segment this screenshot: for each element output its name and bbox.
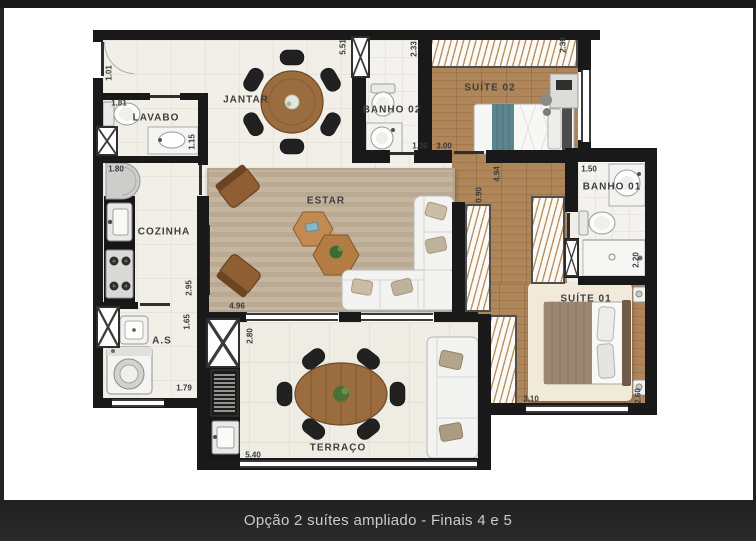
window-estar-terraco-1 bbox=[246, 313, 338, 321]
window-terraco bbox=[240, 460, 477, 468]
room-label-lavabo: LAVABO bbox=[133, 113, 180, 124]
duct-shaft bbox=[564, 239, 579, 277]
door-cozinha bbox=[199, 165, 202, 195]
door-banho01 bbox=[567, 213, 570, 240]
duct-shaft bbox=[96, 306, 120, 348]
room-label-banho02: BANHO 02 bbox=[363, 105, 422, 116]
door-lavabo bbox=[150, 95, 180, 98]
wall bbox=[578, 276, 645, 285]
dim-lavabo-h: 1.15 bbox=[188, 134, 197, 150]
estar-rug bbox=[207, 168, 455, 312]
room-label-cozinha: COZINHA bbox=[138, 227, 191, 238]
dim-banho02-w: 1.30 bbox=[412, 142, 428, 151]
window-estar-terraco-2 bbox=[361, 313, 433, 321]
dim-as-w: 1.79 bbox=[176, 384, 192, 393]
dim-terraco-h: 2.80 bbox=[246, 328, 255, 344]
dim-lavabo-w: 1.81 bbox=[111, 99, 127, 108]
wall bbox=[478, 314, 491, 470]
caption-text: Opção 2 suítes ampliado - Finais 4 e 5 bbox=[244, 512, 512, 529]
dim-suite02-right: 2.39 bbox=[559, 37, 568, 53]
dim-as-h: 1.65 bbox=[183, 314, 192, 330]
window-suite01 bbox=[526, 405, 628, 413]
dim-entry: 1.01 bbox=[105, 65, 114, 81]
floorplan-image: JANTAR LAVABO COZINHA A.S ESTAR TERRAÇO … bbox=[0, 0, 756, 541]
dim-cozinha-w: 1.80 bbox=[108, 165, 124, 174]
duct-shaft bbox=[206, 318, 240, 368]
wall bbox=[434, 312, 478, 322]
wall bbox=[198, 93, 208, 165]
wall bbox=[645, 150, 657, 415]
dim-banho02-h: 5.51 bbox=[339, 39, 348, 55]
dim-estar-w: 4.96 bbox=[229, 302, 245, 311]
room-label-suite01: SUÍTE 01 bbox=[560, 294, 611, 305]
door-suite02 bbox=[454, 151, 484, 154]
floor-banho02 bbox=[368, 40, 418, 152]
room-label-suite02: SUÍTE 02 bbox=[464, 83, 515, 94]
window-as bbox=[112, 399, 164, 407]
kitchen-counter bbox=[104, 196, 135, 308]
wall bbox=[486, 150, 578, 163]
room-label-estar: ESTAR bbox=[307, 196, 345, 207]
room-label-jantar: JANTAR bbox=[223, 95, 269, 106]
wall bbox=[93, 30, 103, 42]
wall bbox=[339, 312, 361, 322]
dim-suite01-h: 2.60 bbox=[634, 388, 643, 404]
dim-suite01-w: 3.10 bbox=[523, 395, 539, 404]
window-suite02 bbox=[581, 70, 591, 142]
wall bbox=[452, 202, 465, 312]
dim-suite02-w: 3.00 bbox=[436, 142, 452, 151]
wall bbox=[418, 30, 432, 152]
dim-hall-h: 4.94 bbox=[493, 166, 502, 182]
room-label-as: A.S bbox=[152, 336, 172, 347]
wall bbox=[565, 162, 578, 212]
dim-hall-w: 0.90 bbox=[475, 187, 484, 203]
wardrobe-suite01 bbox=[489, 315, 517, 405]
duct-shaft bbox=[351, 36, 370, 78]
dim-banho01-w: 1.50 bbox=[581, 165, 597, 174]
door-banho02 bbox=[389, 152, 415, 155]
wall bbox=[93, 156, 198, 163]
caption-bar: Opção 2 suítes ampliado - Finais 4 e 5 bbox=[0, 500, 756, 541]
door-as bbox=[140, 303, 170, 306]
room-label-terraco: TERRAÇO bbox=[310, 443, 366, 454]
left-border bbox=[0, 8, 4, 500]
wardrobe-corridor-left bbox=[465, 204, 491, 312]
dim-banho01-h: 2.20 bbox=[632, 252, 641, 268]
wall bbox=[578, 140, 591, 162]
room-label-banho01: BANHO 01 bbox=[583, 182, 642, 193]
dim-suite02-left: 2.33 bbox=[410, 41, 419, 57]
wardrobe-suite02 bbox=[430, 38, 578, 68]
duct-shaft bbox=[96, 126, 118, 156]
floorplan: JANTAR LAVABO COZINHA A.S ESTAR TERRAÇO … bbox=[0, 0, 756, 500]
dim-terraco-w: 5.40 bbox=[245, 451, 261, 460]
dim-cozinha-h: 2.95 bbox=[185, 280, 194, 296]
wardrobe-corridor-right bbox=[531, 196, 565, 284]
wall bbox=[578, 30, 591, 72]
